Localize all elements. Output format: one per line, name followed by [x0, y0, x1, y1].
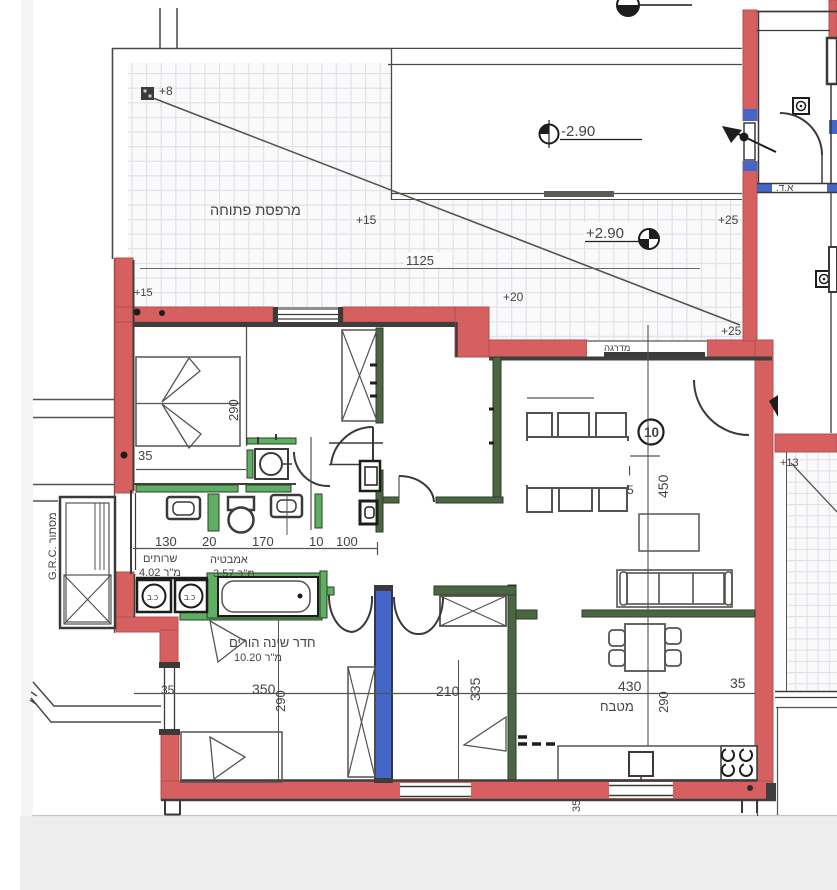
svg-text:מטבח: מטבח [600, 699, 634, 714]
svg-text:+25: +25 [718, 213, 739, 227]
svg-text:אמבטיה: אמבטיה [210, 554, 248, 566]
svg-text:ן: ן [628, 462, 631, 476]
svg-text:35: 35 [138, 448, 152, 463]
svg-text:-2.90: -2.90 [561, 123, 595, 140]
svg-text:1125: 1125 [406, 253, 434, 268]
svg-text:450: 450 [655, 474, 671, 498]
svg-text:10: 10 [309, 534, 323, 549]
svg-text:290: 290 [226, 399, 241, 421]
svg-text:35: 35 [161, 683, 175, 697]
svg-text:20: 20 [202, 534, 216, 549]
svg-text:170: 170 [252, 534, 274, 549]
svg-text:290: 290 [656, 691, 671, 713]
svg-text:מרפסת פתוחה: מרפסת פתוחה [210, 203, 301, 219]
svg-text:+13: +13 [780, 457, 799, 469]
svg-text:כ.ב: כ.ב [147, 593, 158, 602]
svg-text:35: 35 [571, 800, 583, 812]
svg-text:שרותים: שרותים [143, 553, 177, 565]
svg-text:5: 5 [627, 483, 634, 497]
svg-text:335: 335 [467, 677, 483, 701]
svg-text:+15: +15 [356, 213, 377, 227]
svg-text:כ.ב: כ.ב [184, 593, 195, 602]
svg-text:290: 290 [273, 690, 288, 712]
svg-text:+15: +15 [134, 287, 153, 299]
svg-text:+25: +25 [721, 324, 742, 338]
svg-text:+8: +8 [159, 84, 173, 98]
svg-text:100: 100 [336, 534, 358, 549]
svg-text:130: 130 [155, 534, 177, 549]
svg-text:+20: +20 [503, 290, 524, 304]
svg-text:מ"ר 10.20: מ"ר 10.20 [234, 652, 282, 664]
svg-text:10: 10 [644, 425, 659, 440]
svg-text:210: 210 [436, 683, 460, 699]
svg-text:חדר שינה הורים: חדר שינה הורים [229, 635, 316, 650]
svg-text:430: 430 [618, 678, 642, 694]
svg-text:35: 35 [730, 675, 746, 691]
svg-text:+2.90: +2.90 [586, 225, 624, 242]
svg-text:מדרגה: מדרגה [604, 343, 630, 354]
svg-text:.א.ד: .א.ד [776, 183, 794, 194]
svg-text:G.R.C. מסתור: G.R.C. מסתור [47, 512, 59, 580]
